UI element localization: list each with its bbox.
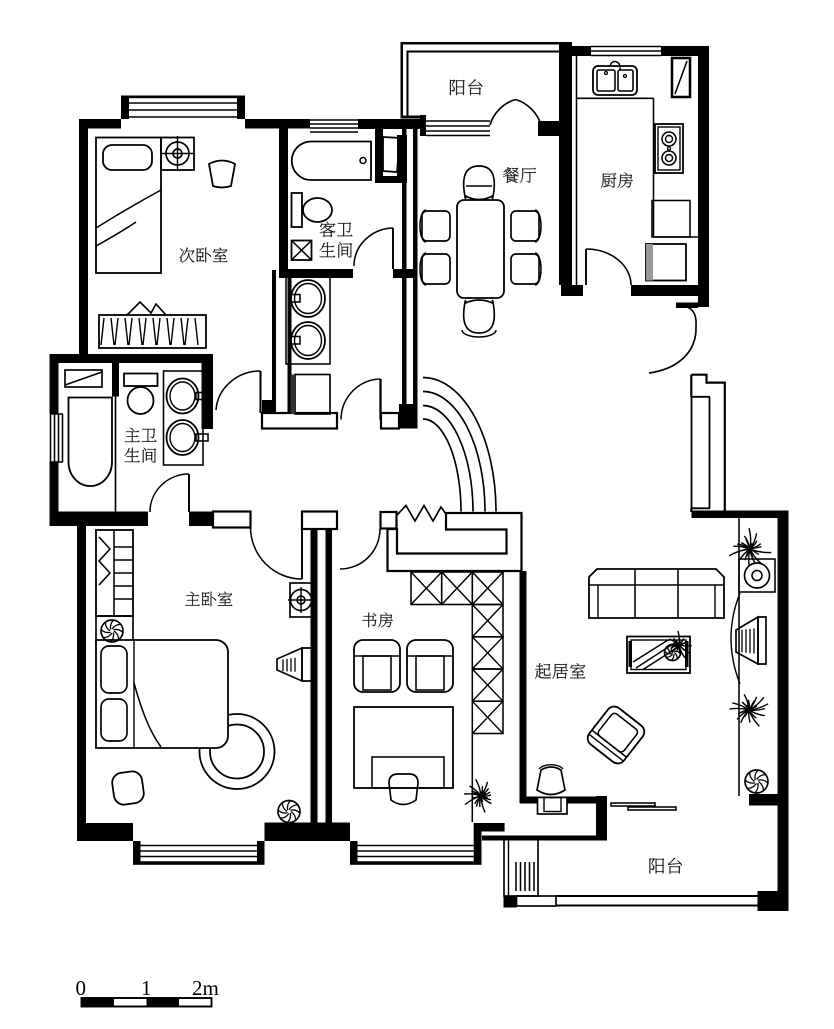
svg-text:0: 0 (76, 976, 87, 1000)
svg-text:1: 1 (141, 976, 152, 1000)
svg-text:2m: 2m (192, 976, 219, 1000)
